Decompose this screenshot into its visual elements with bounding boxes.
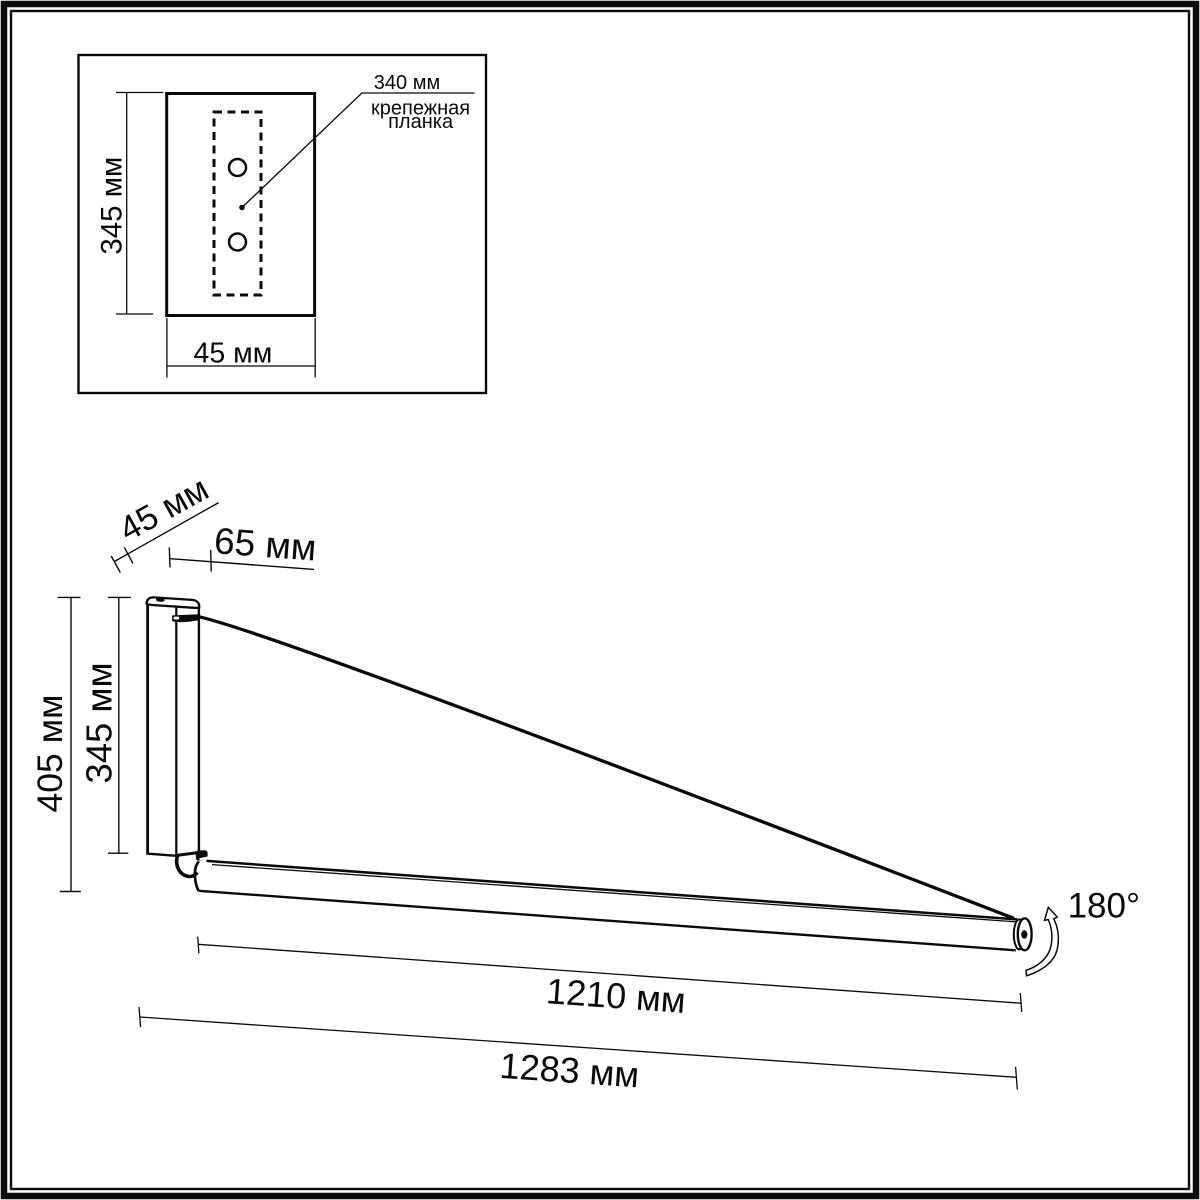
svg-text:65 мм: 65 мм [213,520,318,568]
svg-text:405 мм: 405 мм [30,695,70,813]
svg-text:345 мм: 345 мм [79,662,120,783]
svg-text:340 мм: 340 мм [374,72,440,94]
svg-text:планка: планка [388,111,454,133]
svg-text:180°: 180° [1068,887,1140,926]
svg-text:45 мм: 45 мм [193,338,272,370]
svg-text:345 мм: 345 мм [95,157,128,255]
